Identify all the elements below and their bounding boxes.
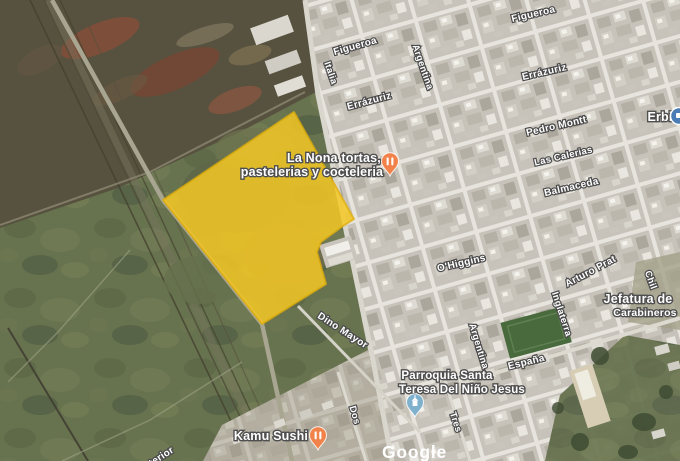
- satellite-map: FigueroaFigueroaItaliaArgentinaErrázuriz…: [0, 0, 680, 461]
- erbi-store-label[interactable]: Erbi: [647, 110, 672, 124]
- la-nona-restaurant-label[interactable]: La Nona tortas,: [287, 151, 381, 165]
- store-icon-erbi[interactable]: [671, 108, 680, 125]
- google-logo[interactable]: Google: [382, 442, 447, 461]
- parroquia-santa-teresa-label[interactable]: Parroquia Santa: [401, 370, 493, 382]
- la-nona-restaurant-label[interactable]: pastelerias y cocteleria: [241, 165, 384, 179]
- jefatura-carabineros-label[interactable]: Jefatura de: [604, 292, 673, 306]
- kamu-sushi-restaurant-label[interactable]: Kamu Sushi: [234, 429, 308, 443]
- jefatura-carabineros-label[interactable]: Carabineros: [613, 307, 676, 319]
- map-canvas[interactable]: FigueroaFigueroaItaliaArgentinaErrázuriz…: [0, 0, 680, 461]
